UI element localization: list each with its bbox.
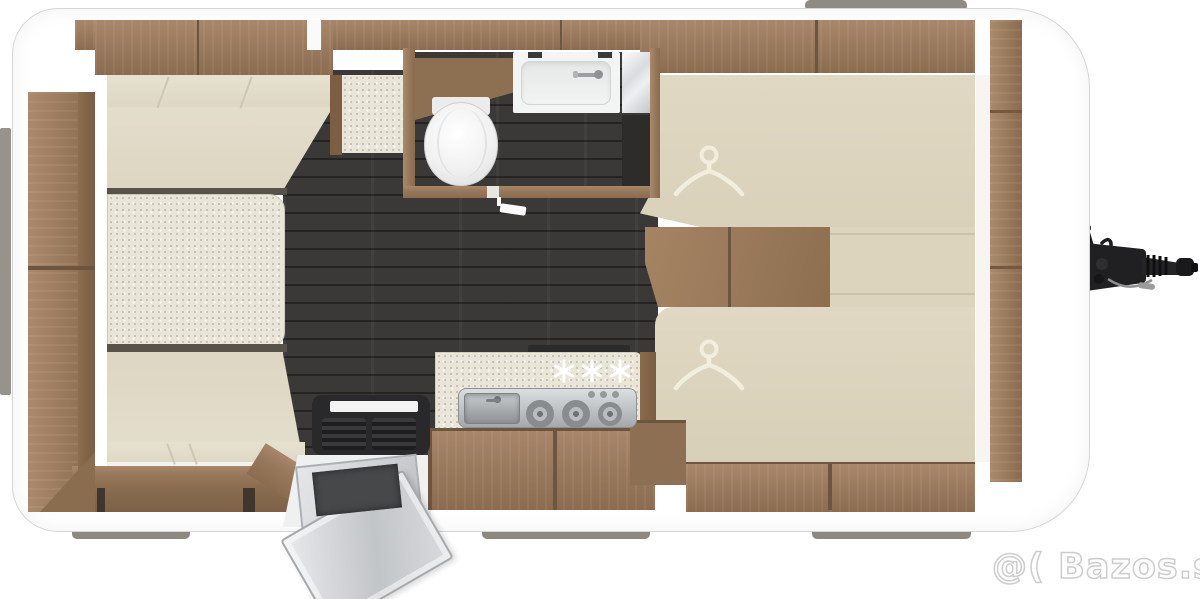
mid-wardrobe-divider [728, 227, 731, 307]
front-wall-sliver [976, 75, 990, 462]
toilet-seat-seam [437, 108, 487, 178]
overhead-cabinet-dinette [95, 20, 333, 75]
bed-corner-post [630, 420, 686, 485]
bench-shelf-slot [97, 488, 105, 512]
tow-hitch-icon [1078, 213, 1200, 305]
kitchen-faucet-arm [486, 399, 500, 402]
kitchen-end-panel [640, 352, 656, 428]
mirror-cabinet [622, 52, 650, 113]
vanity-faucet-tip [573, 71, 578, 78]
mid-cabinet-seam [830, 233, 975, 235]
cabinet-divider [815, 20, 818, 73]
kitchen-cabinet-divider [553, 431, 557, 510]
bathroom-wall-left [403, 48, 415, 198]
vanity-faucet-base [594, 70, 603, 79]
cabinet-gap [307, 20, 321, 50]
vanity-notch [598, 52, 612, 58]
kitchen-sink-basin [464, 393, 520, 424]
vanity-basin [521, 61, 611, 105]
cabinet-divider [197, 20, 199, 75]
watermark: @( Bazos.sk [992, 547, 1197, 592]
hanger-icon [668, 336, 750, 396]
kitchen-cabinets [428, 428, 655, 510]
open-shelf-dark [622, 115, 650, 186]
entry-step-vent [372, 418, 416, 450]
cabinet-divider [560, 20, 562, 50]
bathroom-wall-bottom [499, 186, 650, 198]
overhead-cabinet-bed [640, 20, 975, 73]
bed-rail-divider [828, 464, 832, 510]
hob-knob [600, 391, 607, 398]
rear-wardrobe-shelf [28, 266, 95, 270]
entry-step-tread [330, 401, 418, 412]
bathroom-wall-bottom [403, 186, 487, 198]
mid-wardrobe-wedge [645, 227, 830, 307]
hob-burner [526, 400, 554, 428]
front-band-seam [990, 266, 1022, 269]
bench-shelf [72, 488, 305, 512]
hanger-icon [668, 142, 750, 202]
dinette-corner-cushion [342, 75, 403, 153]
dinette-seat-bottom [107, 352, 300, 444]
bathroom-door-hinge [497, 197, 501, 206]
dinette-corner-post [330, 75, 342, 155]
entry-step-well-inner [312, 464, 402, 517]
front-cabinet-band [990, 20, 1022, 482]
front-band-seam [990, 110, 1022, 113]
dinette-table [107, 194, 285, 348]
vanity-notch [528, 52, 542, 58]
rear-wardrobe-edge [78, 92, 95, 512]
rear-bumper-bar [0, 128, 11, 395]
table-shadow [107, 344, 287, 352]
gas-burner-star-icon [608, 359, 632, 383]
hob-knob [588, 391, 595, 398]
caravan-floor-plan: @( Bazos.sk [0, 0, 1200, 599]
tow-hitch [1078, 213, 1200, 305]
hob-burner [598, 402, 622, 426]
entry-step-vent [322, 418, 366, 450]
kitchen-cabinet-lip [428, 428, 655, 431]
gas-burner-star-icon [552, 359, 576, 383]
hob-knob [612, 391, 619, 398]
bathroom-wall-right [650, 48, 660, 198]
bench-shelf-slot [243, 488, 255, 512]
mid-cabinet-seam [830, 293, 975, 295]
dinette-back-cushions [107, 75, 330, 107]
hob-burner [562, 400, 590, 428]
gas-burner-star-icon [580, 359, 604, 383]
mid-cabinet-top [830, 227, 975, 307]
